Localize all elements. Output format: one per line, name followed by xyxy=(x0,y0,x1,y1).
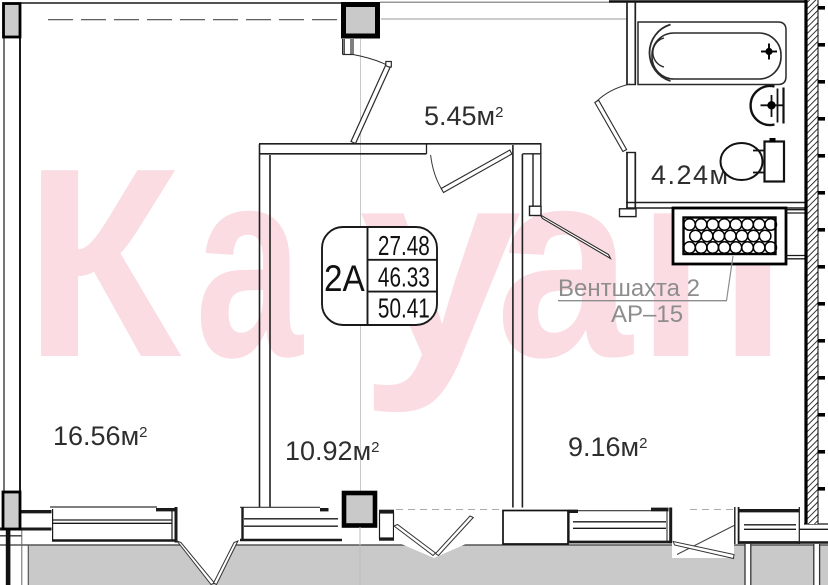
svg-text:а: а xyxy=(496,111,634,413)
svg-text:10.92м2: 10.92м2 xyxy=(285,436,379,466)
svg-text:Вентшахта 2: Вентшахта 2 xyxy=(558,275,700,302)
svg-text:2А: 2А xyxy=(324,258,365,299)
svg-text:16.56м2: 16.56м2 xyxy=(53,421,147,451)
svg-text:5.45м2: 5.45м2 xyxy=(424,101,503,131)
svg-text:9.16м2: 9.16м2 xyxy=(568,432,647,462)
svg-text:27.48: 27.48 xyxy=(378,231,430,262)
svg-text:АР–15: АР–15 xyxy=(611,301,683,328)
svg-text:50.41: 50.41 xyxy=(378,294,430,325)
svg-text:а: а xyxy=(195,112,304,413)
svg-text:46.33: 46.33 xyxy=(378,263,430,294)
svg-text:К: К xyxy=(24,111,185,413)
